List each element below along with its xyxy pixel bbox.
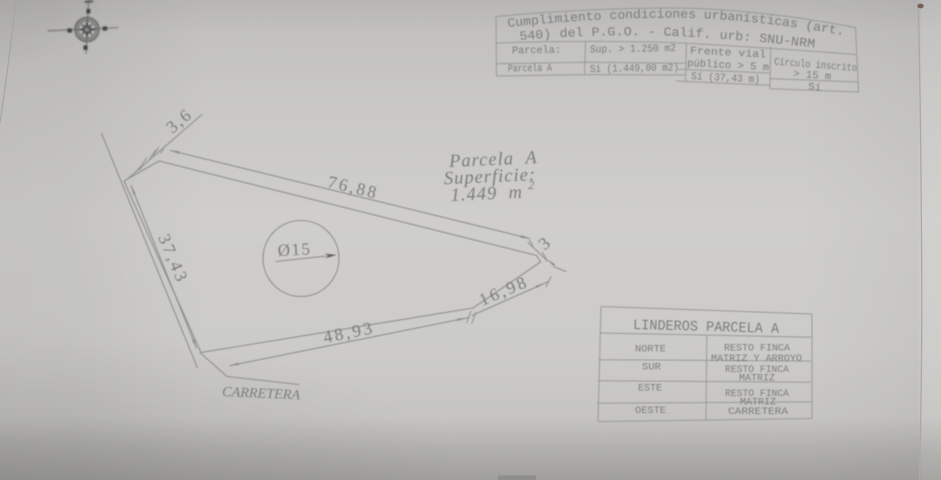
svg-text:OESTE: OESTE — [635, 405, 666, 417]
svg-text:ESTE: ESTE — [638, 383, 662, 395]
svg-text:Parcela A: Parcela A — [508, 63, 553, 76]
svg-text:SUR: SUR — [642, 362, 662, 374]
svg-text:MATRIZ: MATRIZ — [739, 373, 775, 385]
svg-text:Sup. > 1.250 m2: Sup. > 1.250 m2 — [590, 43, 676, 56]
svg-text:NORTE: NORTE — [635, 344, 666, 356]
svg-text:CARRETERA: CARRETERA — [728, 406, 789, 418]
svg-text:Ø15: Ø15 — [277, 239, 312, 260]
svg-text:Sí: Sí — [808, 82, 822, 95]
svg-text:Sí (1.449,00 m2): Sí (1.449,00 m2) — [590, 62, 679, 76]
svg-text:Parcela:: Parcela: — [512, 45, 561, 58]
svg-text:2: 2 — [528, 178, 535, 192]
svg-text:1.449 m: 1.449 m — [450, 183, 523, 206]
